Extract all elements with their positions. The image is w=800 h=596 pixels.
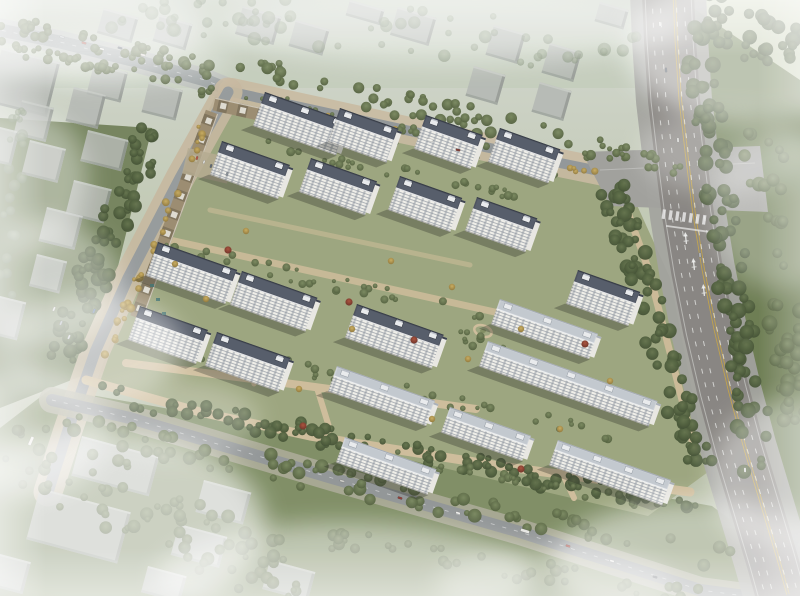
- residential-masterplan-aerial-rendering: [0, 0, 800, 596]
- aerial-rendering-viewport: [0, 0, 800, 596]
- edge-vignette: [0, 0, 800, 596]
